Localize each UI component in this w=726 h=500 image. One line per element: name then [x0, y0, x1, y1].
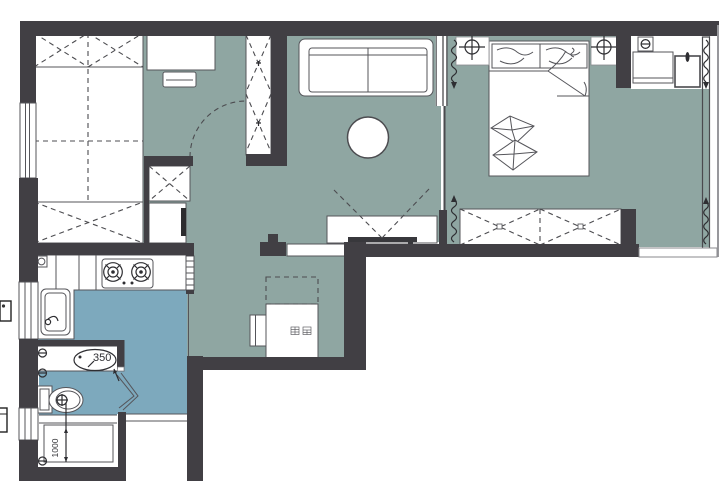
- svg-text:1000: 1000: [50, 438, 60, 457]
- svg-text:350: 350: [93, 352, 111, 364]
